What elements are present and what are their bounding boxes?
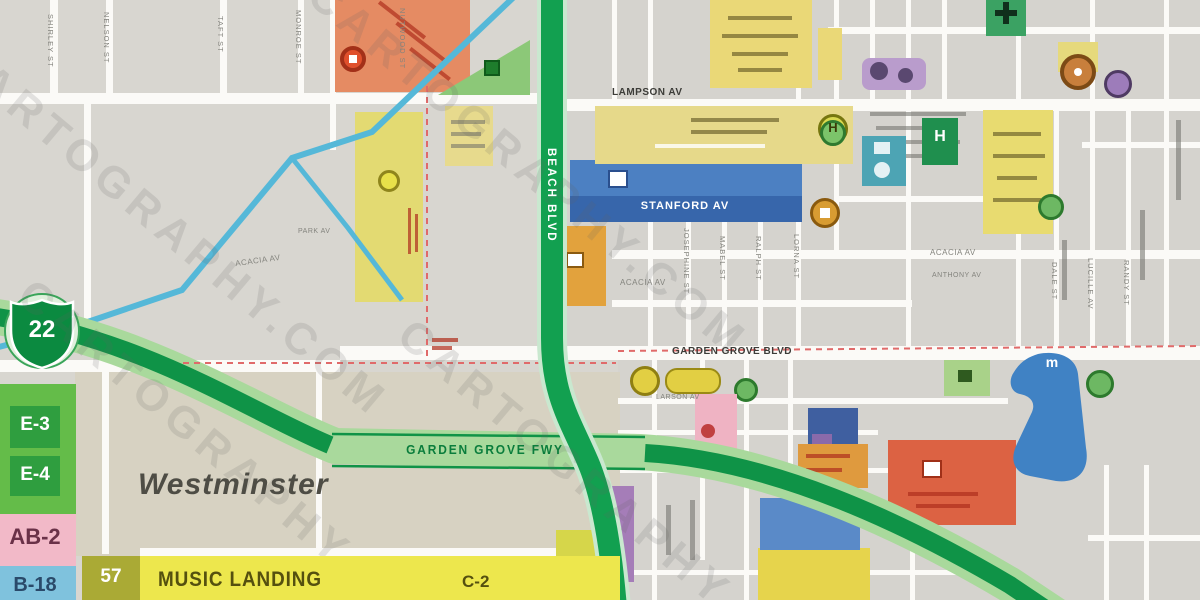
blue-shape-letter: m xyxy=(1032,354,1072,370)
minor-street-label: TAFT ST xyxy=(216,16,225,53)
legend-box-green xyxy=(0,384,76,514)
street-label-park: PARK AV xyxy=(298,228,330,235)
minor-street-label: LUCILLE AV xyxy=(1086,258,1095,310)
minor-street-label: MABEL ST xyxy=(718,236,727,281)
city-label-westminster: Westminster xyxy=(138,468,329,502)
hospital-letter-green: H xyxy=(922,128,958,146)
minor-street-label: LORNA ST xyxy=(792,234,801,279)
waterpark-blue-shape xyxy=(1011,353,1087,482)
hospital-letter-yellow: H xyxy=(818,120,848,135)
grid-ref-c2: C-2 xyxy=(462,572,489,592)
street-label-acacia-2: ACACIA AV xyxy=(930,248,976,257)
minor-street-label: MONROE ST xyxy=(294,10,303,64)
minor-street-label: RANDY ST xyxy=(1122,260,1131,306)
park-icon-square xyxy=(484,60,500,76)
beach-blvd-label: BEACH BLVD xyxy=(545,148,557,243)
route-shield-number: 22 xyxy=(11,316,73,344)
minor-street-label: JOSEPHINE ST xyxy=(682,228,691,294)
street-label-stanford: STANFORD AV xyxy=(585,200,785,212)
page-number-57: 57 xyxy=(82,566,140,588)
grid-ref-e3: E-3 xyxy=(10,414,60,436)
minor-street-label: DALE ST xyxy=(1050,262,1059,300)
grid-ref-e4: E-4 xyxy=(10,464,60,486)
minor-street-label: NUTWOOD ST xyxy=(398,8,407,69)
street-label-gg-blvd: GARDEN GROVE BLVD xyxy=(672,346,792,357)
street-label-larson: LARSON AV xyxy=(656,394,700,401)
grid-ref-ab2: AB-2 xyxy=(0,524,70,550)
boundary-text-texture xyxy=(415,214,418,252)
street-label-lampson: LAMPSON AV xyxy=(612,87,683,98)
park-icon-yellow-circle xyxy=(378,170,400,192)
boundary-text-texture xyxy=(408,208,411,254)
freeway-label: GARDEN GROVE FWY xyxy=(352,442,619,457)
minor-street-label: NELSON ST xyxy=(102,12,111,64)
minor-street-label: RALPH ST xyxy=(754,236,763,281)
grid-ref-b18: B-18 xyxy=(0,574,70,597)
street-map: CARTOGRAPHY.COM CARTOGRAPHY.COM CARTOGRA… xyxy=(0,0,1200,600)
street-label-acacia-1: ACACIA AV xyxy=(620,278,666,287)
landmark-strip-label: MUSIC LANDING xyxy=(158,568,322,592)
street-label-anthony: ANTHONY AV xyxy=(932,272,981,279)
minor-street-label: SHIRLEY ST xyxy=(46,14,55,68)
